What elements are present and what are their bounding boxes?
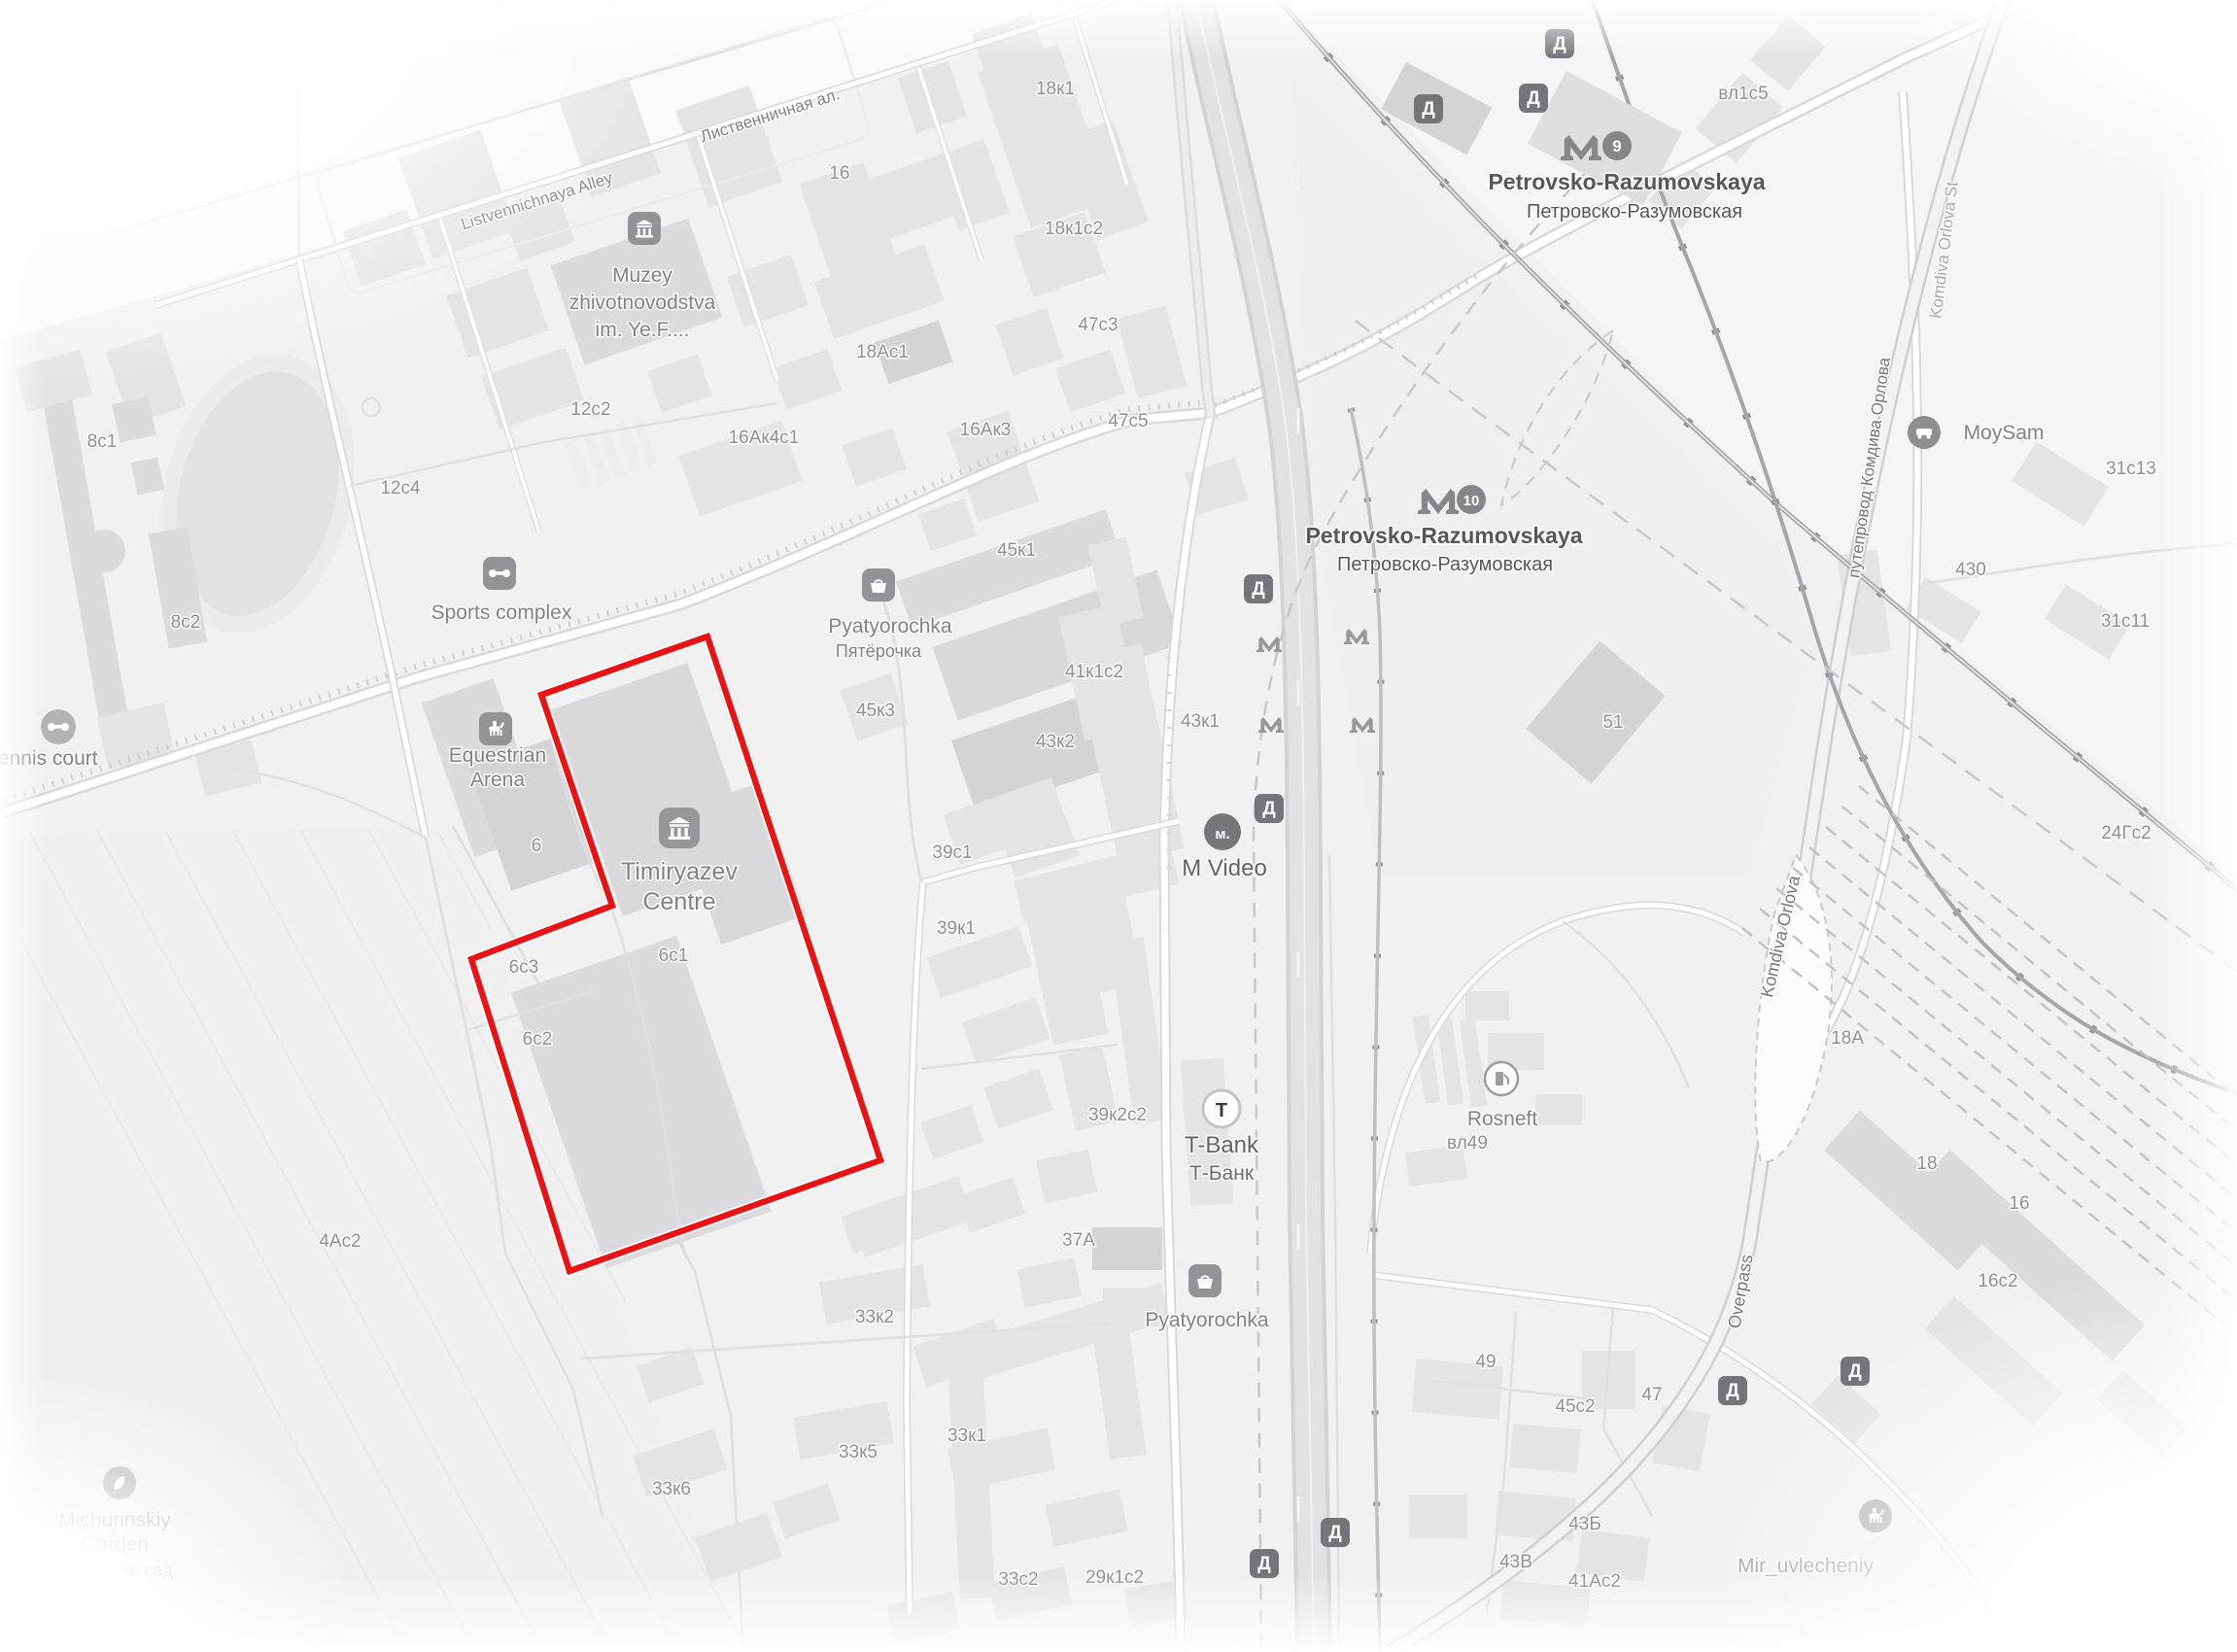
svg-text:18Ас1: 18Ас1 (856, 342, 909, 362)
svg-text:430: 430 (1955, 560, 1986, 580)
svg-text:18А: 18А (1831, 1028, 1864, 1049)
svg-text:18к1с2: 18к1с2 (1045, 219, 1103, 239)
svg-text:Пятёрочка: Пятёрочка (836, 641, 922, 661)
svg-text:Muzey: Muzey (612, 264, 672, 287)
svg-text:39к2с2: 39к2с2 (1088, 1105, 1147, 1125)
svg-text:Д: Д (1726, 1381, 1739, 1401)
svg-text:33к2: 33к2 (855, 1307, 894, 1327)
svg-text:43Б: 43Б (1568, 1514, 1601, 1534)
svg-text:33с2: 33с2 (998, 1569, 1038, 1590)
svg-text:18: 18 (1916, 1153, 1937, 1174)
svg-text:MoySam: MoySam (1964, 422, 2045, 444)
svg-text:43В: 43В (1499, 1552, 1532, 1572)
svg-text:8с1: 8с1 (87, 431, 118, 452)
svg-text:47с5: 47с5 (1108, 411, 1148, 431)
svg-text:6: 6 (532, 836, 542, 856)
svg-text:Д: Д (1848, 1361, 1862, 1382)
svg-text:16: 16 (2009, 1193, 2029, 1214)
svg-text:Д: Д (1257, 1554, 1271, 1574)
svg-text:45с2: 45с2 (1555, 1396, 1595, 1417)
svg-text:47: 47 (1641, 1385, 1662, 1405)
svg-text:Equestrian: Equestrian (449, 744, 546, 767)
svg-text:Pyatyorochka: Pyatyorochka (828, 615, 952, 637)
svg-text:Rosneft: Rosneft (1467, 1108, 1538, 1130)
svg-text:10: 10 (1463, 493, 1480, 509)
svg-text:Sports complex: Sports complex (431, 602, 572, 624)
svg-text:Т-Банк: Т-Банк (1189, 1162, 1255, 1185)
svg-text:Centre: Centre (642, 888, 715, 915)
svg-text:16с2: 16с2 (1978, 1271, 2017, 1291)
svg-text:39с1: 39с1 (932, 843, 972, 863)
svg-text:T-Bank: T-Bank (1185, 1132, 1259, 1158)
svg-text:45к3: 45к3 (856, 701, 895, 721)
svg-text:31с11: 31с11 (2101, 611, 2150, 632)
svg-text:6с2: 6с2 (523, 1029, 553, 1050)
svg-text:вл1с5: вл1с5 (1718, 84, 1768, 104)
svg-text:33к5: 33к5 (839, 1442, 878, 1463)
svg-text:12с2: 12с2 (570, 399, 610, 420)
svg-text:4Ас2: 4Ас2 (319, 1231, 361, 1252)
svg-text:zhivotnovodstva: zhivotnovodstva (569, 292, 716, 314)
svg-text:Д: Д (1422, 99, 1435, 120)
svg-text:Д: Д (1252, 579, 1265, 600)
svg-text:9: 9 (1612, 137, 1621, 155)
svg-text:Петровско-Разумовская: Петровско-Разумовская (1337, 554, 1553, 575)
svg-text:43к2: 43к2 (1036, 732, 1075, 752)
svg-text:чуринский сад: чуринский сад (56, 1561, 173, 1580)
svg-text:Michurinskiy: Michurinskiy (58, 1509, 171, 1532)
svg-text:41к1с2: 41к1с2 (1065, 662, 1123, 682)
svg-text:Д: Д (1328, 1523, 1342, 1543)
svg-text:37А: 37А (1062, 1230, 1095, 1251)
svg-text:Tennis court: Tennis court (0, 747, 98, 770)
svg-text:Pyatyorochka: Pyatyorochka (1145, 1309, 1269, 1331)
svg-text:T: T (1216, 1100, 1227, 1121)
svg-text:im. Ye.F....: im. Ye.F.... (596, 319, 690, 341)
svg-text:12с4: 12с4 (380, 478, 421, 499)
svg-text:Д: Д (1553, 34, 1566, 54)
svg-text:47с3: 47с3 (1078, 315, 1118, 335)
svg-text:Garden: Garden (81, 1533, 149, 1556)
svg-text:Arena: Arena (470, 769, 525, 791)
svg-text:49: 49 (1475, 1352, 1496, 1372)
svg-text:51: 51 (1602, 712, 1623, 733)
svg-text:16Ак3: 16Ак3 (960, 420, 1012, 440)
svg-text:33к1: 33к1 (947, 1426, 986, 1446)
svg-text:29к1с2: 29к1с2 (1085, 1567, 1144, 1588)
svg-text:6с3: 6с3 (509, 957, 539, 978)
svg-text:Petrovsko-Razumovskaya: Petrovsko-Razumovskaya (1488, 169, 1765, 194)
svg-text:24Гс2: 24Гс2 (2101, 823, 2151, 843)
svg-text:Timiryazev: Timiryazev (621, 858, 738, 885)
svg-text:18к1: 18к1 (1036, 79, 1075, 99)
svg-text:16: 16 (829, 163, 849, 184)
svg-text:16Ак4с1: 16Ак4с1 (729, 428, 800, 448)
svg-text:Mir_uvlecheniy: Mir_uvlecheniy (1738, 1555, 1875, 1577)
svg-text:Петровско-Разумовская: Петровско-Разумовская (1527, 201, 1742, 223)
svg-text:вл49: вл49 (1447, 1133, 1488, 1153)
svg-text:45к1: 45к1 (997, 540, 1036, 561)
svg-text:6с1: 6с1 (659, 946, 689, 966)
svg-text:43к1: 43к1 (1181, 711, 1220, 732)
svg-text:Д: Д (1262, 799, 1276, 819)
svg-text:31с13: 31с13 (2106, 459, 2156, 479)
svg-text:33к6: 33к6 (652, 1479, 691, 1499)
svg-text:8с2: 8с2 (171, 612, 201, 633)
svg-text:Д: Д (1527, 88, 1540, 109)
svg-text:M Video: M Video (1182, 855, 1267, 881)
svg-text:Petrovsko-Razumovskaya: Petrovsko-Razumovskaya (1305, 523, 1582, 548)
svg-text:41Ас2: 41Ас2 (1568, 1571, 1621, 1592)
svg-text:м.: м. (1215, 826, 1229, 843)
svg-text:39к1: 39к1 (937, 918, 976, 939)
